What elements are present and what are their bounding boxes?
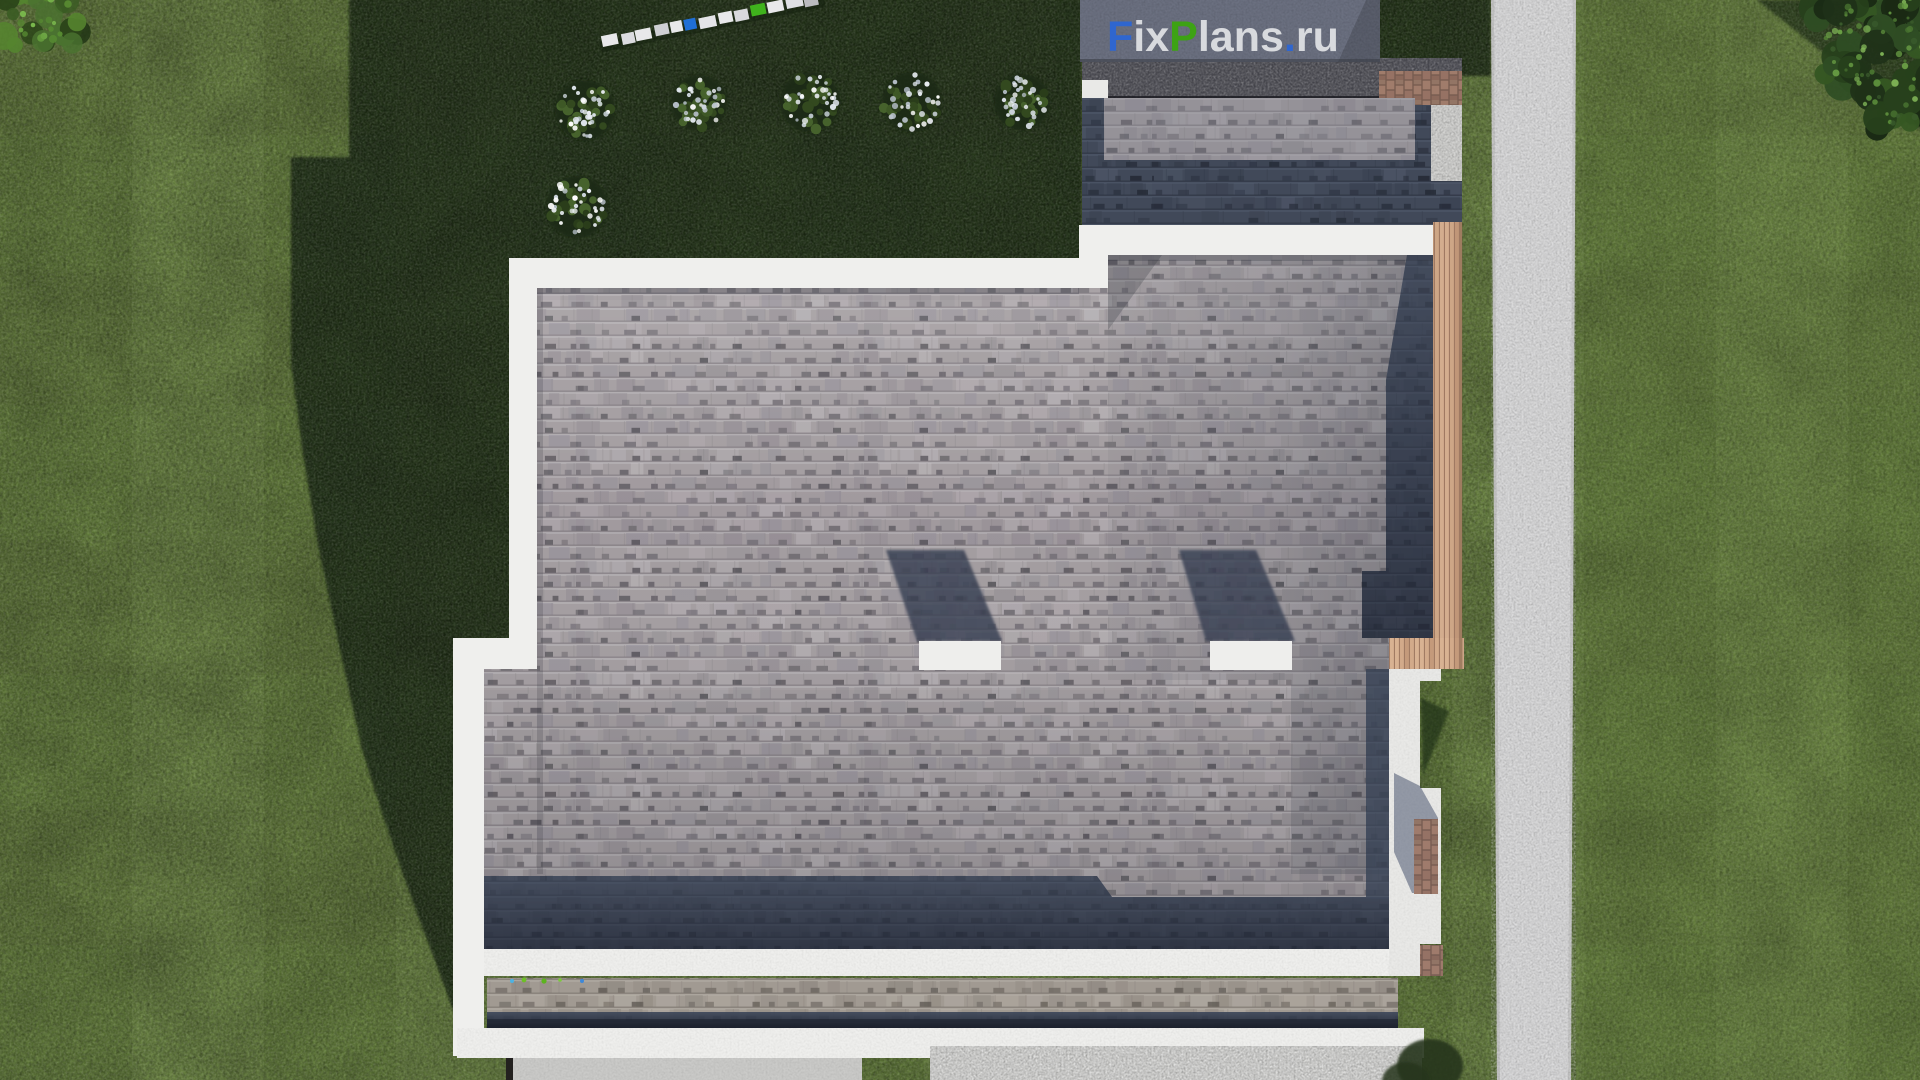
svg-text:FixPlans.ru: FixPlans.ru — [1107, 13, 1339, 61]
